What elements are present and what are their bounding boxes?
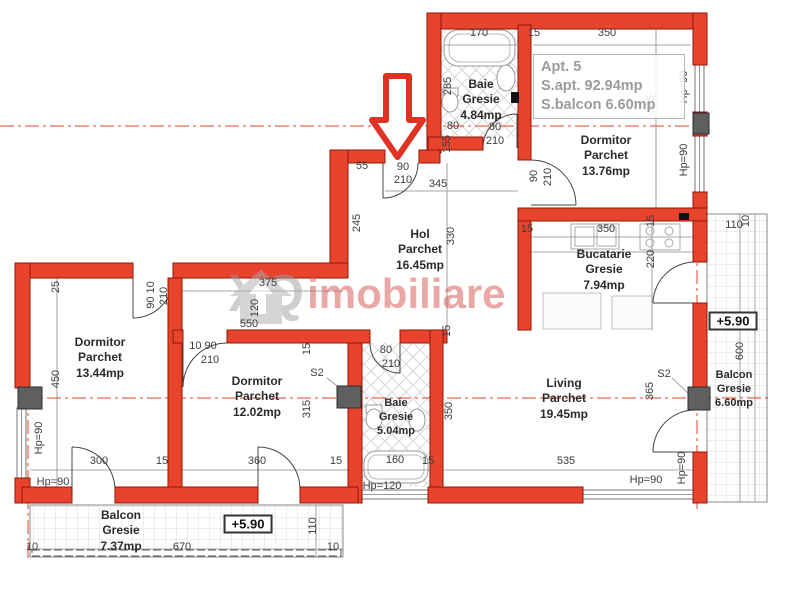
dim-label: S2 [657, 368, 670, 380]
dim-label: 15 [156, 455, 168, 467]
dim-label: 10 90 [189, 340, 217, 352]
dim-label: 360 [248, 455, 266, 467]
dim-label: 15 [528, 27, 540, 39]
dim-label: 10 [327, 541, 339, 553]
dim-label: S2 [310, 367, 323, 379]
dim-label: 330 [445, 227, 457, 245]
kitchen-sink-icon [575, 227, 594, 246]
dim-label: 670 [173, 541, 191, 553]
room-label-balcon1: BalconGresie6.60mp [715, 368, 753, 410]
dim-label: 300 [90, 455, 108, 467]
level-marker: +5.90 [224, 515, 273, 534]
dim-label: 450 [50, 370, 62, 388]
dim-label: 600 [734, 342, 746, 360]
dim-label: 155 [441, 135, 453, 153]
dim-label: 210 [486, 135, 504, 147]
dim-label: 120 [249, 299, 261, 317]
dim-label: 210 [158, 287, 170, 305]
room-label-dormitor2: DormitorParchet13.44mp [75, 335, 126, 381]
level-marker: +5.90 [709, 312, 758, 331]
dim-label: 80 [447, 120, 459, 132]
dim-label: Hp=90 [37, 476, 70, 488]
dim-label: 375 [259, 277, 277, 289]
dim-label: 365 [644, 382, 656, 400]
dim-label: 210 [382, 358, 400, 370]
dim-label: 80 [380, 344, 392, 356]
apartment-title: Apt. 5 [541, 58, 677, 77]
apartment-balcony-area: S.balcon 6.60mp [541, 96, 677, 115]
dim-label: 25 [50, 281, 62, 293]
dim-label: 170 [470, 27, 488, 39]
apartment-area: S.apt. 92.94mp [541, 77, 677, 96]
dim-label: Hp=120 [363, 480, 402, 492]
room-label-living: LivingParchet19.45mp [540, 376, 588, 422]
dim-label: 550 [240, 318, 258, 330]
dim-label: 210 [394, 174, 412, 186]
dim-label: 245 [351, 214, 363, 232]
room-label-dormitor3: DormitorParchet12.02mp [232, 374, 283, 420]
dim-label: Hp=90 [630, 474, 663, 486]
room-label-balcon2: BalconGresie7.37mp [100, 508, 141, 554]
dim-label: 15 [441, 325, 453, 337]
room-label-dormitor1: DormitorParchet13.76mp [581, 133, 632, 179]
dim-label: 80 [489, 121, 501, 133]
dim-label: 350 [598, 27, 616, 39]
dim-label: 350 [597, 223, 615, 235]
room-label-hol: HolParchet16.45mp [396, 227, 444, 273]
dim-label: 90 [397, 161, 409, 173]
kitchen-table [543, 293, 652, 329]
dim-label: 350 [443, 402, 455, 420]
dim-label: 10 [740, 215, 752, 227]
dim-label: 110 [307, 517, 319, 535]
dim-label: 345 [429, 178, 447, 190]
dim-label: 15 [422, 455, 434, 467]
dim-label: 10 [26, 541, 38, 553]
dim-label: 90 10 [145, 281, 157, 309]
dim-label: 285 [442, 77, 454, 95]
dim-label: 55 [356, 160, 368, 172]
dim-label: 15 [521, 223, 533, 235]
room-label-bucatarie: BucatarieGresie7.94mp [577, 247, 632, 293]
dim-label: 15 [301, 343, 313, 355]
dim-label: Hp=90 [676, 452, 688, 485]
dim-label: Hp=90 [33, 422, 45, 455]
floor-plan: Apt. 5 S.apt. 92.94mp S.balcon 6.60mp XQ… [0, 0, 800, 611]
dim-label: 315 [301, 400, 313, 418]
dim-label: Hp=90 [678, 144, 690, 177]
dim-label: 210 [542, 168, 554, 186]
dim-label: 220 [645, 250, 657, 268]
entrance-arrow-icon [372, 76, 423, 157]
dim-label: 90 [528, 170, 540, 182]
room-label-baie2: BaieGresie5.04mp [377, 396, 415, 438]
dim-label: 210 [201, 354, 219, 366]
dim-label: 160 [386, 454, 404, 466]
dim-label: 15 [330, 455, 342, 467]
room-label-baie1: BaieGresie4.84mp [460, 77, 501, 123]
dim-label: 535 [557, 455, 575, 467]
apartment-info-box: Apt. 5 S.apt. 92.94mp S.balcon 6.60mp [533, 54, 685, 119]
dim-label: 15 [645, 215, 657, 227]
